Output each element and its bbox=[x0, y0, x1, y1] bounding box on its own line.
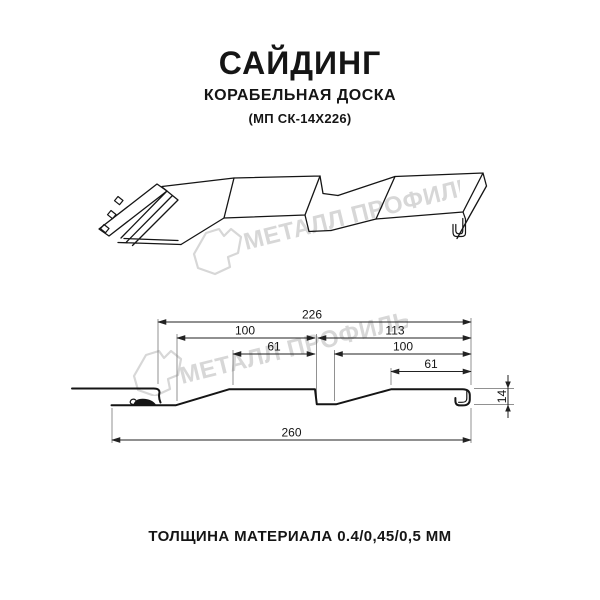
top-face-1 bbox=[224, 176, 320, 218]
lock-seam bbox=[134, 399, 157, 405]
cross-section-drawing: 226 100 113 61 100 61 260 14 bbox=[55, 298, 545, 460]
dimension-label-260: 260 bbox=[281, 426, 301, 440]
page-title: САЙДИНГ bbox=[0, 46, 600, 80]
product-model: (МП СК-14Х226) bbox=[0, 111, 600, 126]
extension-lines bbox=[112, 318, 514, 443]
catalog-diagram-page: САЙДИНГ КОРАБЕЛЬНАЯ ДОСКА (МП СК-14Х226)… bbox=[0, 0, 600, 600]
profile-outline bbox=[72, 389, 470, 406]
product-subtitle: КОРАБЕЛЬНАЯ ДОСКА bbox=[0, 87, 600, 105]
hook-inner-line bbox=[459, 392, 467, 403]
end-hook bbox=[453, 212, 466, 237]
dimension-label-100-right: 100 bbox=[393, 340, 413, 354]
dimension-label-14: 14 bbox=[495, 390, 509, 404]
thickness-note: ТОЛЩИНА МАТЕРИАЛА 0.4/0,45/0,5 ММ bbox=[0, 528, 600, 545]
slope-face-2 bbox=[331, 177, 395, 231]
dimension-label-100-left: 100 bbox=[235, 324, 255, 338]
dimension-label-113: 113 bbox=[385, 324, 404, 338]
top-face-2 bbox=[376, 173, 487, 239]
title-block: САЙДИНГ КОРАБЕЛЬНАЯ ДОСКА (МП СК-14Х226) bbox=[0, 46, 600, 126]
dim-arrow-14-top bbox=[505, 382, 511, 389]
dimension-label-61-right: 61 bbox=[424, 357, 438, 371]
dim-arrow-14-bottom bbox=[505, 405, 511, 412]
slope-face-1 bbox=[162, 178, 234, 245]
profile-3d-drawing bbox=[88, 150, 498, 260]
lock-folds bbox=[118, 187, 181, 246]
dimension-label-226: 226 bbox=[302, 308, 322, 322]
dimension-label-61-left: 61 bbox=[267, 340, 281, 354]
